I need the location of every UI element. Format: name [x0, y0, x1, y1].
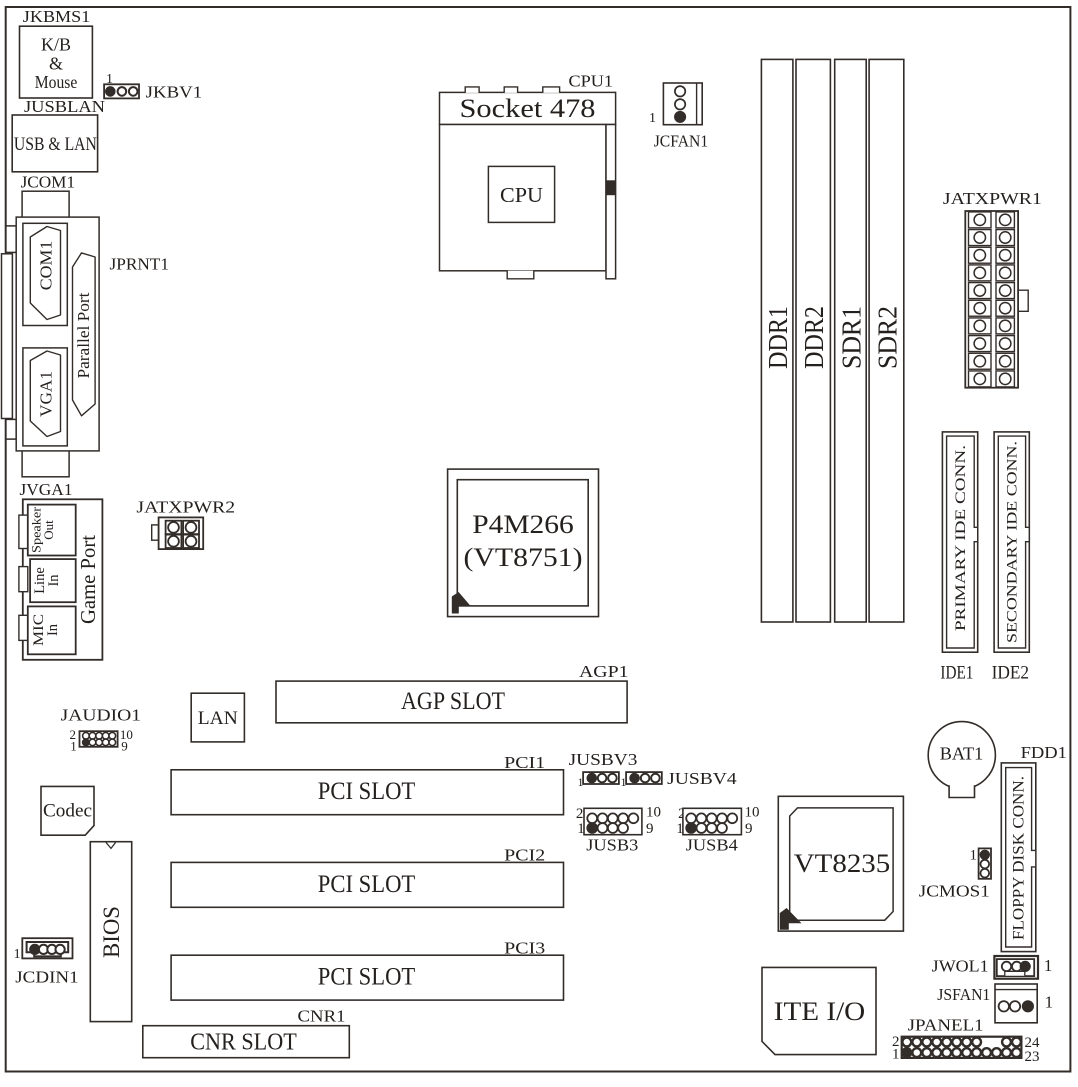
svg-text:Codec: Codec	[43, 801, 92, 822]
svg-text:JUSBV4: JUSBV4	[667, 769, 737, 788]
svg-text:JCDIN1: JCDIN1	[15, 968, 78, 987]
svg-text:SDR2: SDR2	[872, 306, 902, 369]
svg-text:SECONDARY IDE CONN.: SECONDARY IDE CONN.	[1004, 441, 1020, 643]
svg-text:JPANEL1: JPANEL1	[908, 1016, 984, 1035]
svg-text:Parallel Port: Parallel Port	[74, 292, 93, 378]
svg-text:PRIMARY IDE CONN.: PRIMARY IDE CONN.	[953, 445, 969, 631]
svg-text:In: In	[45, 623, 61, 636]
svg-text:AGP SLOT: AGP SLOT	[401, 688, 505, 715]
svg-text:IDE2: IDE2	[992, 664, 1030, 684]
svg-text:1: 1	[70, 739, 77, 754]
svg-text:SDR1: SDR1	[836, 306, 866, 369]
svg-text:(VT8751): (VT8751)	[464, 543, 583, 572]
svg-text:Mouse: Mouse	[35, 72, 78, 92]
svg-text:PCI SLOT: PCI SLOT	[318, 778, 416, 805]
svg-text:2: 2	[576, 806, 584, 822]
svg-text:JCOM1: JCOM1	[21, 173, 76, 192]
svg-text:9: 9	[745, 821, 753, 837]
svg-text:BIOS: BIOS	[99, 906, 124, 958]
svg-text:CNR1: CNR1	[298, 1007, 346, 1026]
svg-text:AGP1: AGP1	[579, 662, 629, 681]
svg-text:COM1: COM1	[36, 241, 55, 291]
svg-text:JVGA1: JVGA1	[20, 480, 73, 499]
svg-text:9: 9	[121, 739, 128, 754]
svg-text:23: 23	[1025, 1049, 1040, 1065]
svg-text:K/B: K/B	[41, 35, 71, 55]
svg-text:JKBV1: JKBV1	[146, 83, 203, 102]
svg-text:JCMOS1: JCMOS1	[919, 882, 990, 901]
svg-text:1: 1	[14, 947, 21, 962]
svg-text:CNR SLOT: CNR SLOT	[190, 1030, 297, 1056]
svg-text:CPU: CPU	[500, 183, 543, 207]
svg-text:JKBMS1: JKBMS1	[23, 7, 91, 26]
svg-text:&: &	[49, 54, 63, 74]
svg-text:LAN: LAN	[198, 709, 238, 729]
svg-text:JSFAN1: JSFAN1	[937, 985, 990, 1004]
svg-text:JATXPWR1: JATXPWR1	[943, 189, 1042, 208]
svg-text:P4M266: P4M266	[472, 510, 574, 539]
svg-text:1: 1	[892, 1047, 900, 1063]
svg-text:BAT1: BAT1	[940, 744, 984, 764]
svg-text:PCI SLOT: PCI SLOT	[318, 964, 416, 991]
svg-text:DDR2: DDR2	[799, 306, 829, 369]
svg-text:Game Port: Game Port	[76, 535, 100, 624]
svg-text:1: 1	[649, 111, 656, 126]
svg-text:Socket 478: Socket 478	[460, 94, 596, 123]
svg-text:10: 10	[745, 805, 760, 821]
svg-text:1: 1	[970, 848, 978, 864]
svg-text:JWOL1: JWOL1	[932, 956, 989, 975]
svg-text:JUSB4: JUSB4	[686, 836, 739, 855]
svg-text:FLOPPY DISK CONN.: FLOPPY DISK CONN.	[1011, 776, 1028, 940]
svg-text:FDD1: FDD1	[1021, 743, 1067, 762]
svg-text:JATXPWR2: JATXPWR2	[136, 498, 235, 517]
svg-text:Out: Out	[41, 520, 56, 540]
svg-text:PCI SLOT: PCI SLOT	[318, 871, 416, 898]
svg-text:CPU1: CPU1	[569, 72, 614, 91]
svg-text:JCFAN1: JCFAN1	[654, 132, 709, 151]
svg-text:JPRNT1: JPRNT1	[110, 255, 170, 274]
svg-text:JUSB3: JUSB3	[586, 836, 638, 855]
svg-text:VGA1: VGA1	[36, 371, 55, 417]
svg-text:USB & LAN: USB & LAN	[14, 134, 97, 155]
svg-text:1: 1	[1044, 956, 1053, 975]
svg-text:DDR1: DDR1	[763, 306, 793, 369]
svg-text:9: 9	[646, 821, 654, 837]
svg-text:JUSBV3: JUSBV3	[569, 750, 638, 769]
svg-text:In: In	[46, 574, 62, 587]
svg-text:JAUDIO1: JAUDIO1	[61, 706, 142, 725]
svg-text:ITE I/O: ITE I/O	[774, 996, 866, 1026]
svg-text:IDE1: IDE1	[940, 664, 973, 684]
svg-text:10: 10	[646, 805, 661, 821]
svg-text:JUSBLAN: JUSBLAN	[24, 97, 105, 116]
svg-text:VT8235: VT8235	[794, 848, 891, 878]
svg-text:1: 1	[1045, 993, 1054, 1012]
